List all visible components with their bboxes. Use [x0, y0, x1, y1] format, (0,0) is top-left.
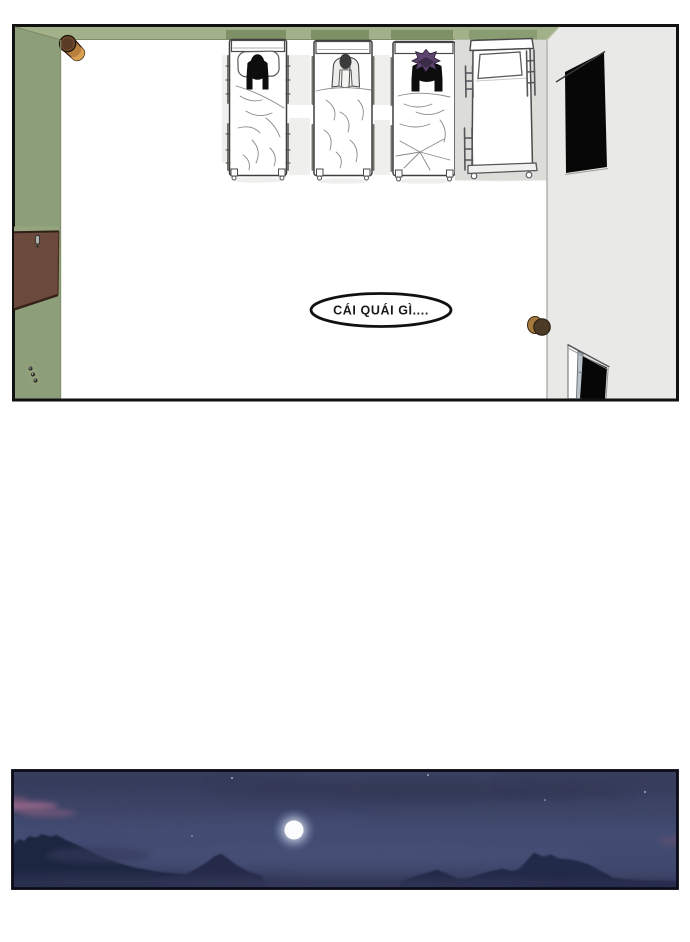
svg-text:CÁI QUÁI GÌ....: CÁI QUÁI GÌ....	[333, 303, 429, 318]
